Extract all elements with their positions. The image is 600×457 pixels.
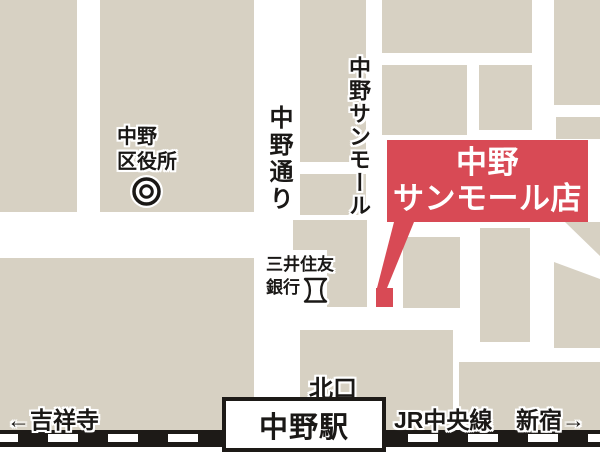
- building-block: [382, 0, 532, 53]
- bank-line1: 三井住友: [266, 254, 334, 277]
- station-name: 中野駅: [259, 404, 349, 446]
- ward-office-line1: 中野: [117, 125, 177, 150]
- building-block: [554, 0, 600, 105]
- building-block: [0, 0, 77, 212]
- ward-office-label: 中野 区役所: [117, 125, 177, 175]
- store-name-line1: 中野: [456, 145, 519, 181]
- building-block-ward-office: [100, 0, 254, 212]
- nakano-dori-street-label: 中野通り: [261, 105, 296, 213]
- nakano-sunmall-store-map: 中野 区役所 中野通り 中野サンモール 三井住友 銀行 北口 ←吉祥寺 JR中央…: [0, 0, 600, 457]
- store-name-line2: サンモール店: [393, 181, 582, 217]
- ward-office-line2: 区役所: [117, 150, 177, 175]
- bank-line2: 銀行: [266, 277, 334, 300]
- direction-shinjuku-label: 新宿→: [516, 401, 585, 435]
- direction-kichijoji-label: ←吉祥寺: [7, 401, 99, 435]
- building-block: [480, 228, 530, 342]
- building-block: [556, 117, 600, 139]
- nakano-station-box: 中野駅: [222, 397, 386, 452]
- store-callout: 中野 サンモール店: [387, 140, 588, 222]
- sunmall-arcade-label: 中野サンモール: [342, 56, 374, 217]
- store-marker-icon: [376, 288, 393, 307]
- building-block: [565, 222, 600, 256]
- building-block: [382, 65, 467, 135]
- building-block: [479, 65, 532, 130]
- jr-chuo-line-label: JR中央線: [394, 401, 492, 435]
- bank-label: 三井住友 銀行: [266, 254, 334, 300]
- building-block: [554, 262, 600, 348]
- building-block: [403, 237, 460, 308]
- building-block-bank: [293, 220, 367, 250]
